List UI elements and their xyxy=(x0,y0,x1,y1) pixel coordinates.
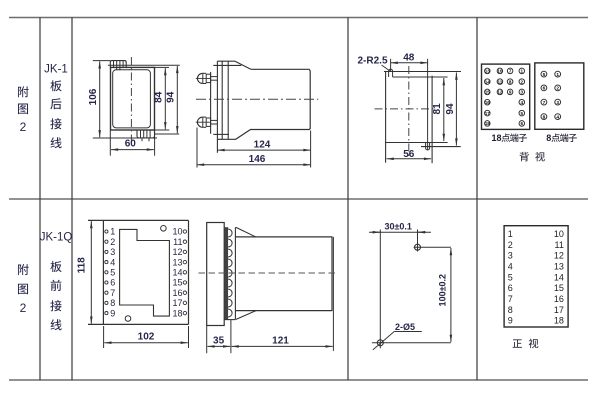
svg-text:2: 2 xyxy=(521,79,524,84)
svg-text:5: 5 xyxy=(508,272,513,282)
svg-text:1: 1 xyxy=(556,72,559,78)
svg-text:2: 2 xyxy=(110,237,115,247)
svg-text:100±0.2: 100±0.2 xyxy=(438,274,448,306)
svg-text:8: 8 xyxy=(509,79,512,84)
svg-text:146: 146 xyxy=(249,154,266,165)
svg-text:102: 102 xyxy=(138,331,155,342)
svg-text:3: 3 xyxy=(521,90,524,95)
svg-text:18: 18 xyxy=(554,316,564,326)
svg-text:8: 8 xyxy=(508,305,513,315)
svg-text:17: 17 xyxy=(554,305,564,315)
svg-text:6: 6 xyxy=(508,283,513,293)
svg-text:121: 121 xyxy=(272,336,289,347)
svg-text:9: 9 xyxy=(110,308,115,318)
svg-text:3: 3 xyxy=(508,251,513,261)
svg-text:JK-1: JK-1 xyxy=(44,64,68,76)
svg-text:2: 2 xyxy=(20,301,27,315)
svg-text:16: 16 xyxy=(554,294,564,304)
svg-text:13: 13 xyxy=(485,69,491,74)
svg-text:7: 7 xyxy=(543,100,546,106)
svg-text:15: 15 xyxy=(554,283,564,293)
svg-text:13: 13 xyxy=(172,257,182,267)
svg-text:5: 5 xyxy=(543,72,546,78)
svg-text:6: 6 xyxy=(521,121,524,126)
svg-text:4: 4 xyxy=(508,262,513,272)
svg-text:84: 84 xyxy=(154,91,165,103)
svg-text:7: 7 xyxy=(508,294,513,304)
svg-text:11: 11 xyxy=(173,237,182,247)
svg-text:16: 16 xyxy=(485,100,491,105)
svg-text:9: 9 xyxy=(508,316,513,326)
svg-text:1: 1 xyxy=(110,227,115,237)
svg-text:2-Ø5: 2-Ø5 xyxy=(395,322,415,332)
svg-text:11: 11 xyxy=(555,240,564,250)
svg-text:56: 56 xyxy=(403,149,415,160)
svg-text:7: 7 xyxy=(509,69,512,74)
svg-text:12: 12 xyxy=(172,247,182,257)
svg-text:30±0.1: 30±0.1 xyxy=(384,221,411,231)
svg-text:106: 106 xyxy=(88,88,99,105)
svg-text:17: 17 xyxy=(485,111,491,116)
svg-text:10: 10 xyxy=(172,227,182,237)
svg-text:17: 17 xyxy=(172,298,182,308)
svg-text:6: 6 xyxy=(110,278,115,288)
svg-text:10: 10 xyxy=(497,69,503,74)
svg-text:1: 1 xyxy=(521,69,524,74)
svg-text:4: 4 xyxy=(556,114,559,120)
svg-text:60: 60 xyxy=(125,138,137,149)
svg-text:2: 2 xyxy=(508,240,513,250)
svg-text:94: 94 xyxy=(445,103,456,115)
svg-text:JK-1Q: JK-1Q xyxy=(40,232,73,244)
svg-text:16: 16 xyxy=(172,288,182,298)
svg-text:118: 118 xyxy=(77,257,88,274)
svg-text:5: 5 xyxy=(521,111,524,116)
svg-text:14: 14 xyxy=(554,272,564,282)
svg-text:13: 13 xyxy=(554,262,564,272)
svg-text:48: 48 xyxy=(403,53,415,64)
svg-text:11: 11 xyxy=(497,79,502,84)
svg-text:12: 12 xyxy=(497,90,503,95)
svg-text:12: 12 xyxy=(554,251,564,261)
svg-text:8: 8 xyxy=(546,133,551,143)
svg-text:18: 18 xyxy=(485,121,491,126)
svg-text:1: 1 xyxy=(508,229,513,239)
svg-text:6: 6 xyxy=(543,86,546,92)
svg-text:3: 3 xyxy=(556,100,559,106)
svg-text:10: 10 xyxy=(554,229,564,239)
svg-text:124: 124 xyxy=(254,139,271,150)
svg-text:15: 15 xyxy=(485,90,491,95)
svg-text:35: 35 xyxy=(213,336,225,347)
svg-text:8: 8 xyxy=(110,298,115,308)
svg-text:9: 9 xyxy=(509,90,512,95)
svg-text:4: 4 xyxy=(521,100,524,105)
svg-text:94: 94 xyxy=(165,91,176,103)
svg-text:2-R2.5: 2-R2.5 xyxy=(357,55,387,66)
svg-text:18: 18 xyxy=(491,133,501,143)
svg-text:14: 14 xyxy=(172,268,182,278)
svg-text:8: 8 xyxy=(543,114,546,120)
svg-text:81: 81 xyxy=(432,103,443,115)
svg-text:15: 15 xyxy=(172,278,182,288)
svg-text:3: 3 xyxy=(110,247,115,257)
svg-text:18: 18 xyxy=(172,308,182,318)
svg-text:5: 5 xyxy=(110,268,115,278)
svg-text:14: 14 xyxy=(485,79,491,84)
svg-text:2: 2 xyxy=(556,86,559,92)
svg-text:4: 4 xyxy=(110,257,115,267)
svg-text:2: 2 xyxy=(20,120,27,134)
svg-text:7: 7 xyxy=(110,288,115,298)
